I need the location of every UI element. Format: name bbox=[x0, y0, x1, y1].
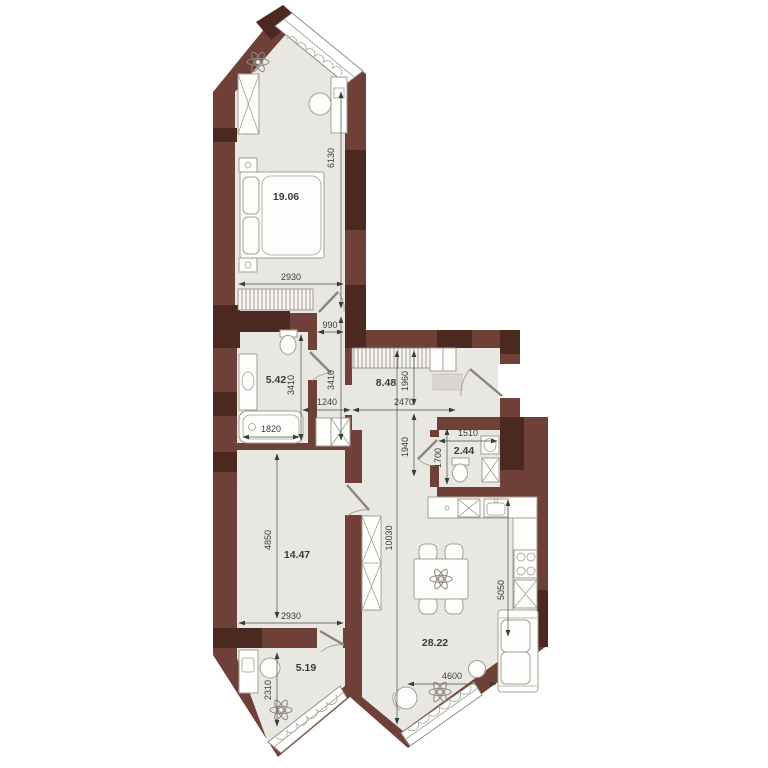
dining-chair bbox=[445, 597, 463, 614]
desk bbox=[331, 77, 347, 133]
sofa-cushion bbox=[501, 652, 530, 684]
wardrobe-rail bbox=[238, 289, 313, 310]
dim-2930-bed1: 2930 bbox=[281, 272, 301, 282]
desk bbox=[239, 650, 258, 693]
floor-plan: 6130 2930 990 3410 3410 1240 1820 2470 1… bbox=[0, 0, 768, 768]
dim-2470: 2470 bbox=[394, 397, 414, 407]
dim-1940: 1940 bbox=[400, 437, 410, 457]
area-wc: 2.44 bbox=[454, 445, 475, 457]
dining-chair bbox=[445, 544, 463, 561]
entry-mat bbox=[433, 374, 462, 390]
lounge-chair bbox=[395, 687, 417, 709]
dim-5050: 5050 bbox=[496, 580, 506, 600]
dim-4600: 4600 bbox=[442, 671, 462, 681]
sofa-cushion bbox=[501, 620, 530, 652]
nightstand bbox=[239, 258, 257, 272]
dim-1510: 1510 bbox=[458, 428, 478, 438]
dining-chair bbox=[419, 544, 437, 561]
area-hallway: 8.48 bbox=[376, 377, 397, 389]
chair bbox=[309, 93, 331, 115]
area-kitchen-living: 28.22 bbox=[422, 637, 448, 649]
toilet bbox=[280, 336, 296, 355]
dim-6130: 6130 bbox=[326, 148, 336, 168]
shaft-boxes bbox=[316, 418, 350, 446]
wc-toilet bbox=[453, 464, 468, 482]
dim-10030: 10030 bbox=[384, 525, 394, 550]
pillow bbox=[243, 217, 259, 254]
dim-2310: 2310 bbox=[263, 680, 273, 700]
area-bedroom-1: 19.06 bbox=[273, 191, 299, 203]
hall-wardrobe bbox=[352, 348, 430, 368]
area-bathroom: 5.42 bbox=[266, 374, 287, 386]
dim-3410-bath: 3410 bbox=[286, 375, 296, 395]
dim-990: 990 bbox=[322, 320, 337, 330]
dim-2930-bed2: 2930 bbox=[281, 611, 301, 621]
dim-1960: 1960 bbox=[400, 371, 410, 391]
dim-1700: 1700 bbox=[433, 448, 443, 468]
bedroom2-floor bbox=[237, 450, 345, 628]
area-cabinet: 5.19 bbox=[296, 662, 317, 674]
entry-opening bbox=[498, 364, 522, 398]
dim-4850: 4850 bbox=[263, 530, 273, 550]
entry-cabinet bbox=[443, 348, 456, 371]
nightstand bbox=[239, 158, 257, 172]
pillow bbox=[243, 177, 259, 214]
kitchen-counter-top bbox=[428, 497, 537, 518]
dim-1820: 1820 bbox=[261, 424, 281, 434]
dim-1240: 1240 bbox=[317, 397, 337, 407]
entry-cabinet bbox=[430, 348, 443, 371]
living-floor2 bbox=[352, 408, 437, 430]
dining-chair bbox=[419, 597, 437, 614]
pouf bbox=[469, 661, 486, 678]
area-bedroom-2: 14.47 bbox=[284, 549, 310, 561]
dim-3410-corr: 3410 bbox=[326, 370, 336, 390]
floor-plan-canvas: 6130 2930 990 3410 3410 1240 1820 2470 1… bbox=[0, 0, 768, 768]
